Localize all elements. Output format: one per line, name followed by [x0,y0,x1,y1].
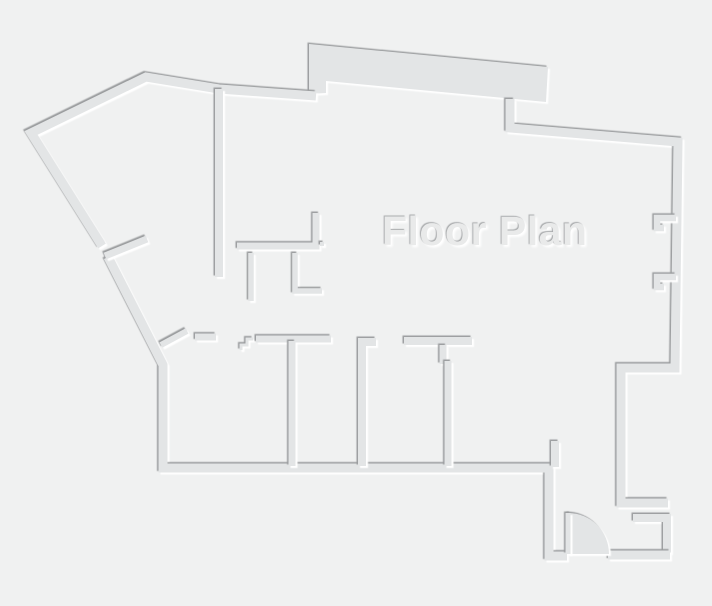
floor-plan-svg [0,0,712,606]
north-annex-band [309,44,548,102]
jamb-dot [320,242,324,246]
south-door-swing [568,513,609,554]
page-title: Floor Plan [382,211,587,252]
northwest-perimeter-wall [31,77,316,246]
west-door-leaf [105,239,147,256]
room-divider-2 [362,342,376,466]
floor-plan-walls [31,44,678,556]
southwest-perimeter-wall [108,257,567,556]
floor-plan-canvas: Floor Plan [0,0,712,606]
southeast-alcove-wall [633,518,667,553]
closet-partition-wall [237,213,316,246]
closet-divider-right [295,253,322,291]
interior-door-leaf [161,331,187,345]
northeast-perimeter-wall [510,99,678,503]
threshold-step [241,339,253,350]
